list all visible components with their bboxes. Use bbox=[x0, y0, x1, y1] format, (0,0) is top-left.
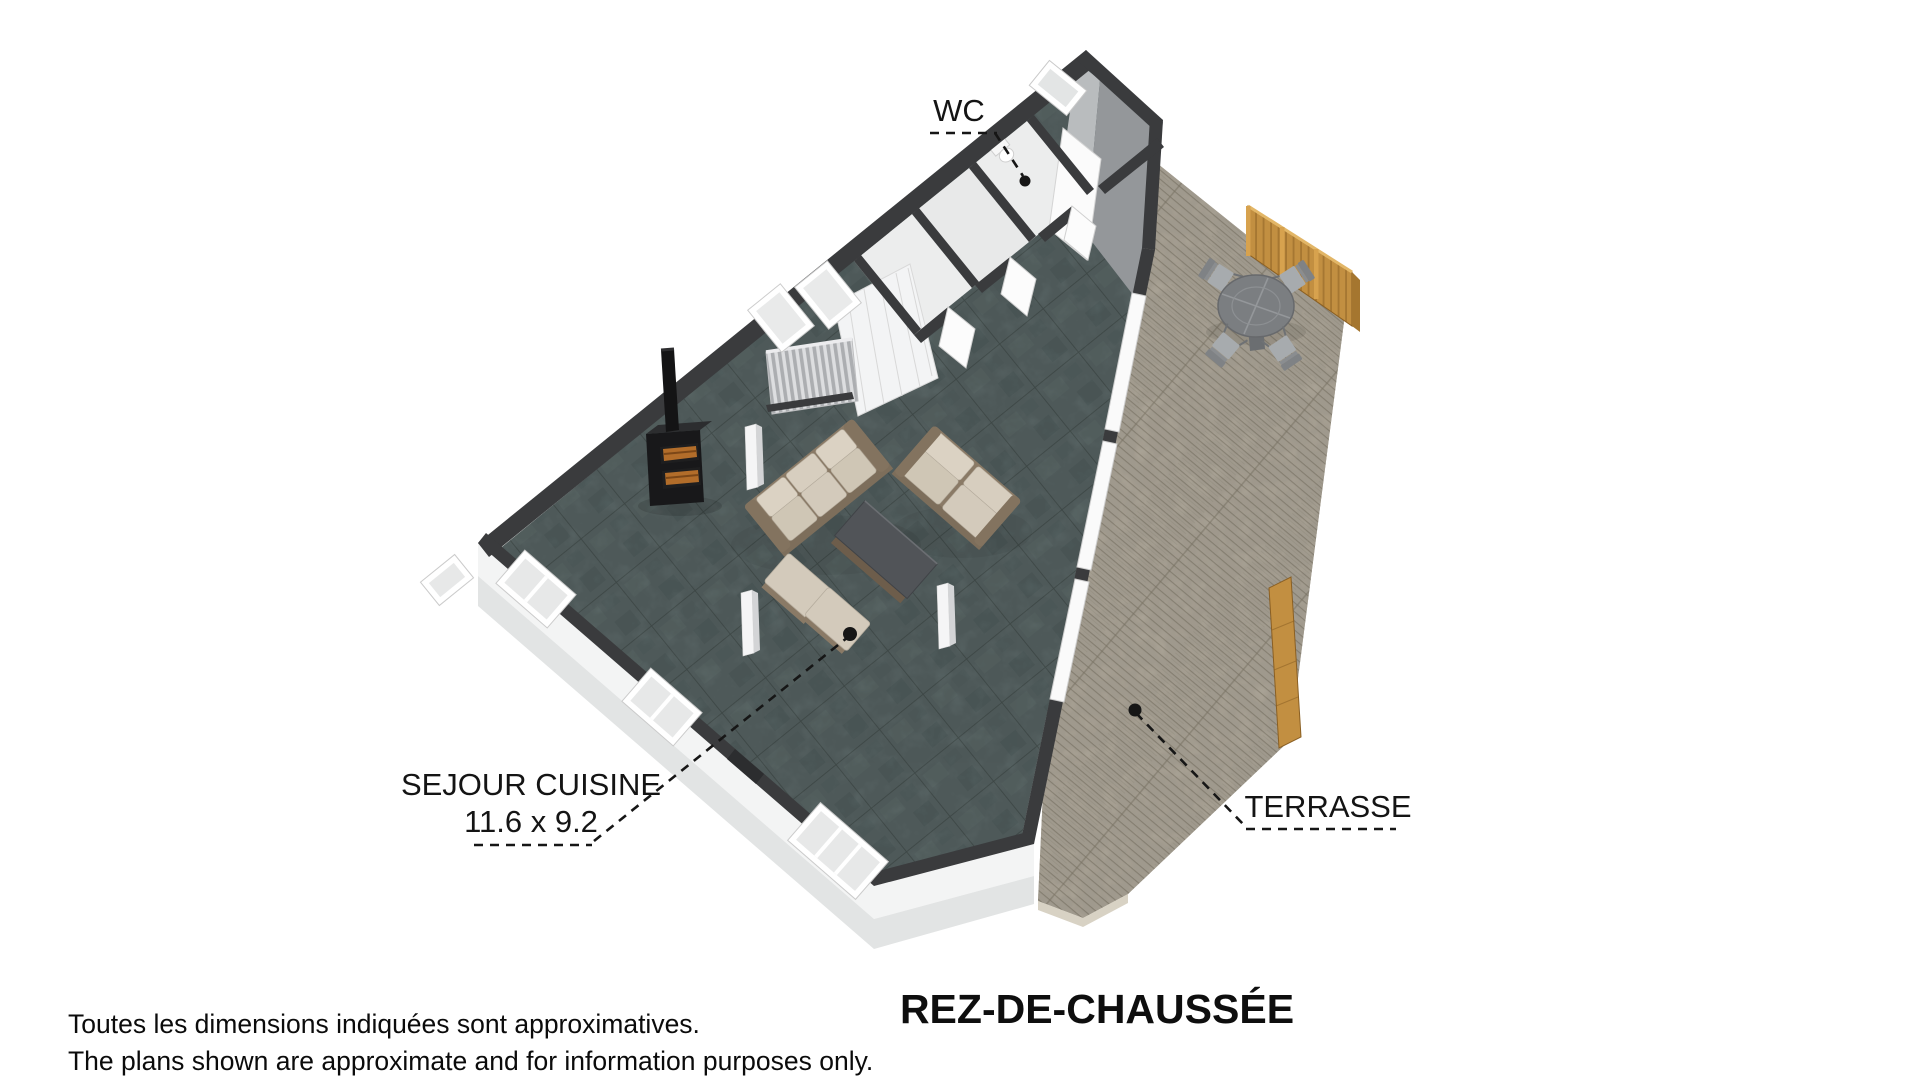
disclaimer-line-2: The plans shown are approximate and for … bbox=[68, 1046, 873, 1076]
disclaimer-line-1: Toutes les dimensions indiquées sont app… bbox=[68, 1009, 700, 1039]
floor-plan-rendering: WC SEJOUR CUISINE 11.6 x 9.2 TERRASSE RE… bbox=[0, 0, 1920, 1080]
fence-end-cap bbox=[1352, 272, 1360, 332]
wc-label: WC bbox=[933, 93, 985, 128]
sejour-marker-dot bbox=[843, 627, 857, 641]
wc-marker-dot bbox=[1020, 176, 1031, 187]
terrasse-label: TERRASSE bbox=[1244, 789, 1411, 824]
terrasse-marker-dot bbox=[1129, 704, 1142, 717]
column-pillar-1 bbox=[745, 424, 764, 490]
floor-title: REZ-DE-CHAUSSÉE bbox=[900, 986, 1294, 1032]
column-pillar-3 bbox=[937, 583, 956, 649]
column-pillar-2 bbox=[741, 590, 760, 656]
building bbox=[0, 0, 1920, 1080]
window-west-corner bbox=[420, 554, 473, 605]
sejour-label: SEJOUR CUISINE bbox=[401, 767, 661, 802]
sejour-dimensions: 11.6 x 9.2 bbox=[464, 804, 598, 839]
captions: REZ-DE-CHAUSSÉE Toutes les dimensions in… bbox=[68, 986, 1294, 1076]
